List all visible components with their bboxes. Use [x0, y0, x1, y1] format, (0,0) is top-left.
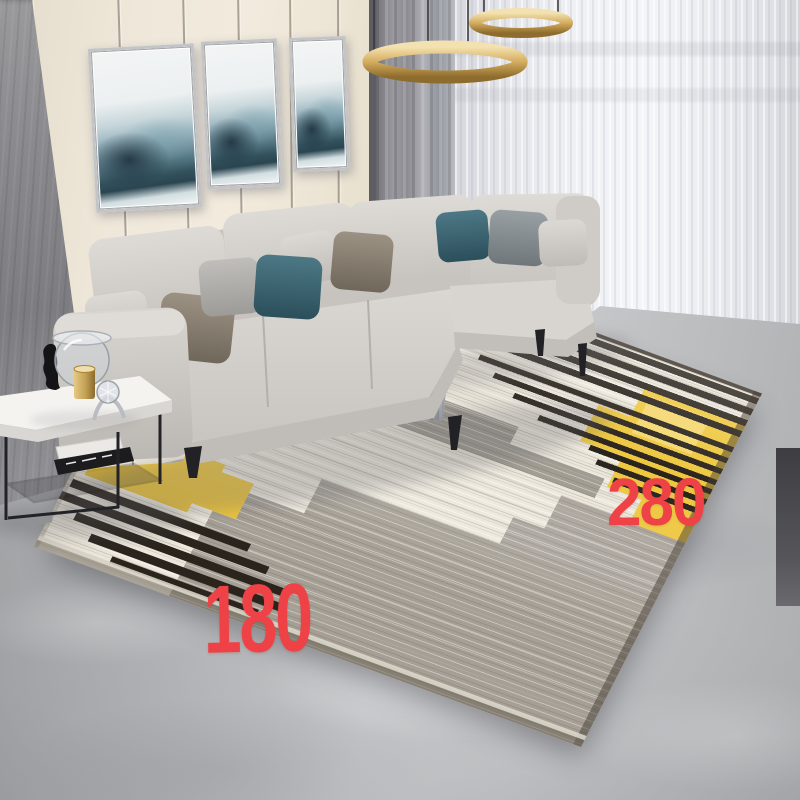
pendant-light: [369, 0, 568, 77]
gold-ring-large: [369, 47, 521, 77]
gold-vase-rim: [74, 366, 95, 373]
pillow-light-gray: [538, 219, 588, 267]
rug-width-label: 180: [203, 569, 312, 668]
pillow-taupe: [330, 230, 395, 293]
living-room-photo: 180 280: [0, 0, 800, 800]
glass-bowl-rim: [53, 331, 111, 345]
pillow-teal: [435, 209, 491, 263]
furniture-layer: [0, 0, 800, 800]
pillow-teal: [253, 254, 323, 320]
rug-length-label: 280: [607, 470, 704, 537]
pillow-silver: [198, 256, 263, 317]
gold-ring-small: [474, 13, 568, 33]
sectional-sofa: [43, 193, 635, 542]
